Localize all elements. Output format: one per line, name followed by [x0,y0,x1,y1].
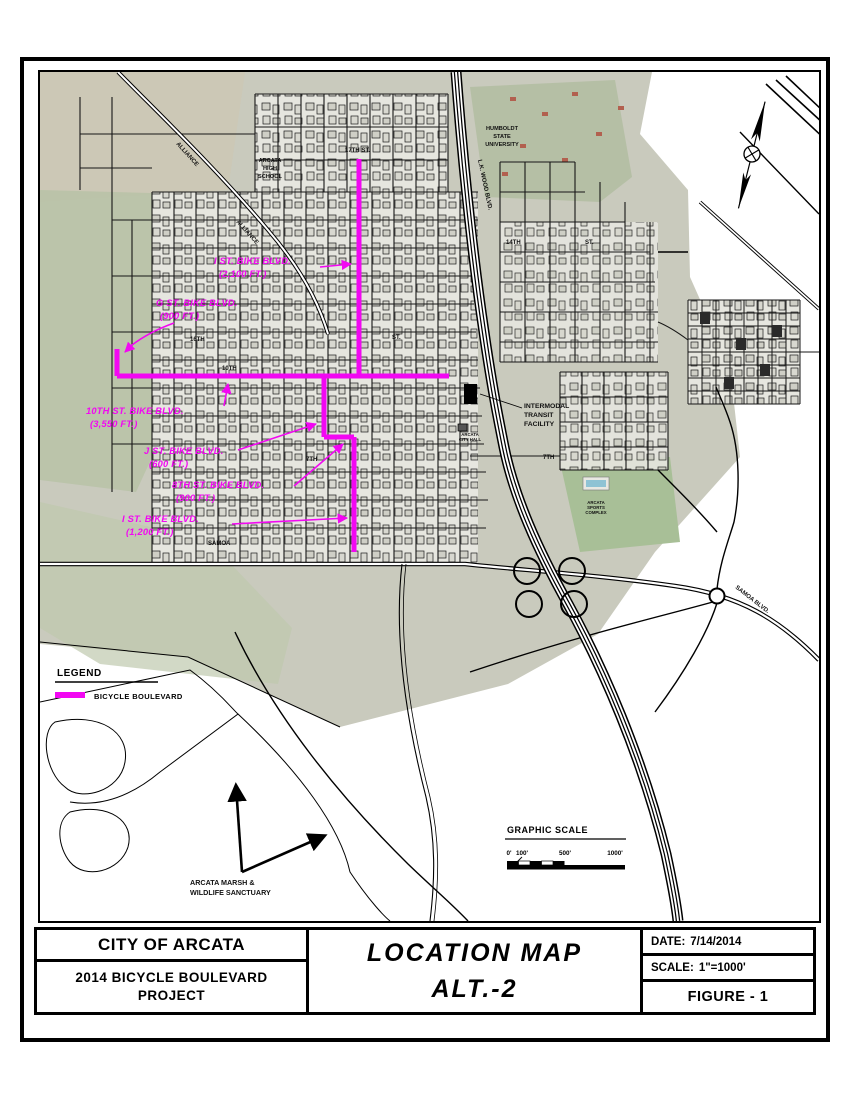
route-length: (900 FT.) [160,311,199,321]
north-arrow-icon [731,100,773,211]
route-name: G ST. BIKE BLVD. [156,298,238,308]
roundabout [710,589,725,604]
route-name: I ST. BIKE BLVD. [122,514,199,524]
label-transit-1: INTERMODAL [524,403,569,410]
label-transit-2: TRANSIT [524,412,554,419]
route-name: 10TH ST. BIKE BLVD. [86,406,184,416]
title-block-left: CITY OF ARCATA 2014 BICYCLE BOULEVARD PR… [37,930,309,1012]
location-map: 17TH ST. 16TH ST. 10TH 14TH ST. 7TH 7TH … [40,72,819,921]
sheet-title-line-2: ALT.-2 [431,971,517,1007]
street-label-samoa: SAMOA [208,541,231,547]
graphic-scale: GRAPHIC SCALE 0' 100' 500' 1000' [505,825,626,870]
scale-tick-0: 0' [507,850,513,857]
label-hsu-1: HUMBOLDT [486,126,519,132]
route-name: I ST. BIKE BLVD. [214,256,291,266]
scale-tick-500: 500' [559,850,572,857]
label-high-school-1: ARCATA [259,158,282,164]
street-label-14th-st: ST. [585,240,594,246]
street-label-st: ST. [392,335,401,341]
sheet-title: LOCATION MAP ALT.-2 [309,930,643,1012]
label-marsh-1: ARCATA MARSH & [190,878,255,887]
city-hall-building [458,424,467,431]
map-area: 17TH ST. 16TH ST. 10TH 14TH ST. 7TH 7TH … [38,70,821,923]
marsh-annotation: ARCATA MARSH & WILDLIFE SANCTUARY [190,786,324,897]
label-sports-3: COMPLEX [585,510,606,515]
route-length: (900 FT.) [176,493,215,503]
scale-label: SCALE: [651,962,694,974]
label-transit-3: FACILITY [524,421,555,428]
title-block-right: DATE: 7/14/2014 SCALE: 1"=1000' FIGURE -… [643,930,813,1012]
project-line-1: 2014 BICYCLE BOULEVARD [75,969,267,987]
street-label-7th-west: 7TH [306,457,317,463]
scale-value: 1"=1000' [699,962,746,974]
label-marsh-2: WILDLIFE SANCTUARY [190,888,271,897]
label-hsu-2: STATE [493,134,511,140]
street-label-7th-east: 7TH [543,455,554,461]
pool [586,480,606,487]
label-city-hall-2: CITY HALL [459,437,482,442]
label-high-school-2: HIGH [263,166,277,172]
project-name: 2014 BICYCLE BOULEVARD PROJECT [37,962,306,1012]
drawing-frame: 17TH ST. 16TH ST. 10TH 14TH ST. 7TH 7TH … [20,57,830,1042]
transit-facility-building [464,384,477,404]
route-length: (600 FT.) [149,459,188,469]
drawing-sheet: 17TH ST. 16TH ST. 10TH 14TH ST. 7TH 7TH … [0,0,850,1100]
legend-swatch-bicycle-boulevard [55,692,85,698]
title-block: CITY OF ARCATA 2014 BICYCLE BOULEVARD PR… [34,927,816,1015]
agency-name: CITY OF ARCATA [37,930,306,962]
route-name: 8TH ST. BIKE BLVD. [172,480,264,490]
date-value: 7/14/2014 [690,936,741,948]
route-length: (3,550 FT.) [90,419,138,429]
route-name: J ST. BIKE BLVD. [144,446,223,456]
street-label-14th: 14TH [506,240,521,246]
graphic-scale-title: GRAPHIC SCALE [507,825,588,835]
street-label-16th: 16TH [190,337,205,343]
label-high-school-3: SCHOOL [258,174,283,180]
label-hsu-3: UNIVERSITY [485,142,519,148]
sheet-title-line-1: LOCATION MAP [367,935,582,971]
street-label-10th: 10TH [222,366,237,372]
route-length: (1,200 FT.) [126,527,174,537]
legend-item-label: BICYCLE BOULEVARD [94,692,183,701]
route-length: (2,100 FT.) [219,269,267,279]
scale-tick-100: 100' [516,850,529,857]
date-label: DATE: [651,936,685,948]
scale-tick-1000: 1000' [607,850,623,857]
legend-title: LEGEND [57,668,102,679]
legend: LEGEND BICYCLE BOULEVARD [55,668,183,701]
scale-row: SCALE: 1"=1000' [643,956,813,982]
project-line-2: PROJECT [138,987,205,1005]
date-row: DATE: 7/14/2014 [643,930,813,956]
street-label-17th: 17TH ST. [345,148,370,154]
figure-number: FIGURE - 1 [643,982,813,1012]
